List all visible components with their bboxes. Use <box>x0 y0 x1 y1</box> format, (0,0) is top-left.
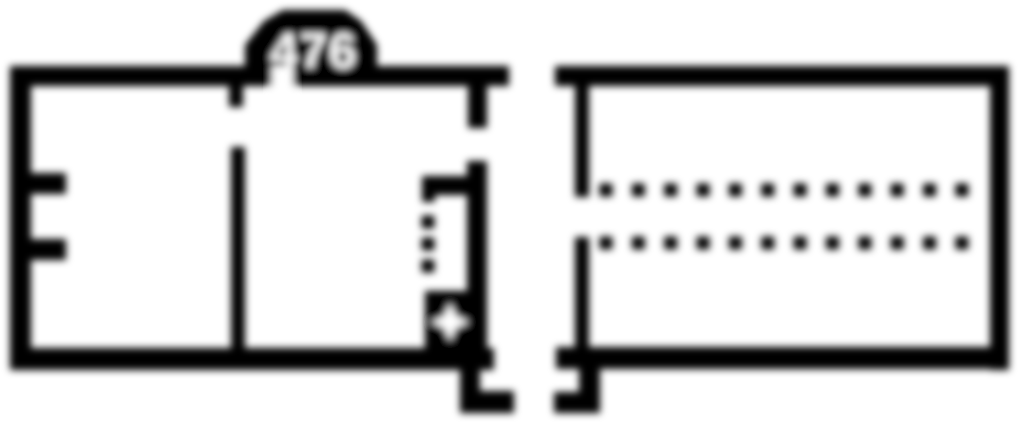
svg-text:476: 476 <box>270 23 358 79</box>
